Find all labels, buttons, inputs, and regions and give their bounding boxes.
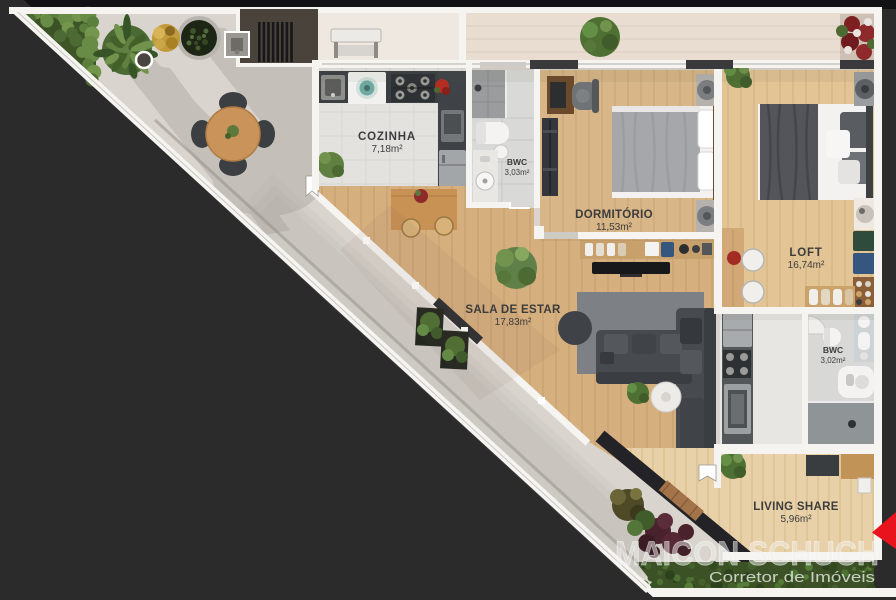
svg-text:3,02m²: 3,02m²: [821, 356, 846, 365]
svg-text:BWC: BWC: [507, 157, 527, 167]
svg-text:17,83m²: 17,83m²: [495, 317, 532, 328]
svg-text:LIVING SHARE: LIVING SHARE: [753, 501, 838, 513]
svg-text:COZINHA: COZINHA: [358, 131, 416, 143]
svg-text:SALA DE ESTAR: SALA DE ESTAR: [465, 304, 561, 316]
svg-text:MAICON SCHUCH: MAICON SCHUCH: [615, 535, 879, 573]
svg-text:5,96m²: 5,96m²: [780, 514, 812, 525]
svg-text:DORMITÓRIO: DORMITÓRIO: [575, 208, 653, 221]
svg-text:16,74m²: 16,74m²: [788, 260, 825, 271]
svg-text:BWC: BWC: [823, 345, 843, 355]
svg-text:LOFT: LOFT: [789, 247, 822, 259]
svg-text:3,03m²: 3,03m²: [505, 168, 530, 177]
svg-text:11,53m²: 11,53m²: [596, 222, 633, 233]
svg-text:7,18m²: 7,18m²: [371, 144, 403, 155]
svg-text:Corretor de Imóveis: Corretor de Imóveis: [709, 569, 875, 586]
